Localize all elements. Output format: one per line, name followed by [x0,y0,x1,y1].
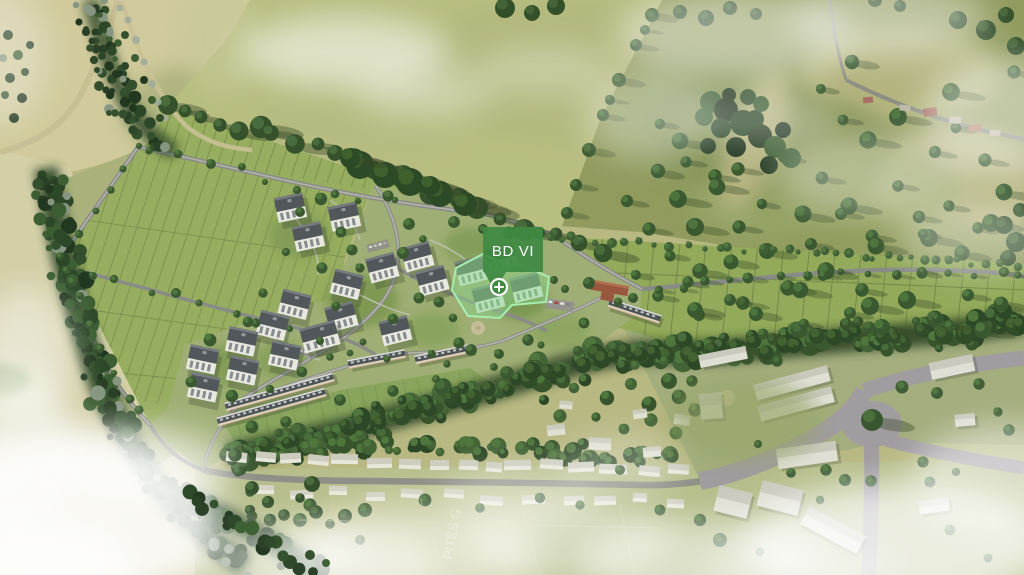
svg-text:BD VI: BD VI [492,243,534,260]
